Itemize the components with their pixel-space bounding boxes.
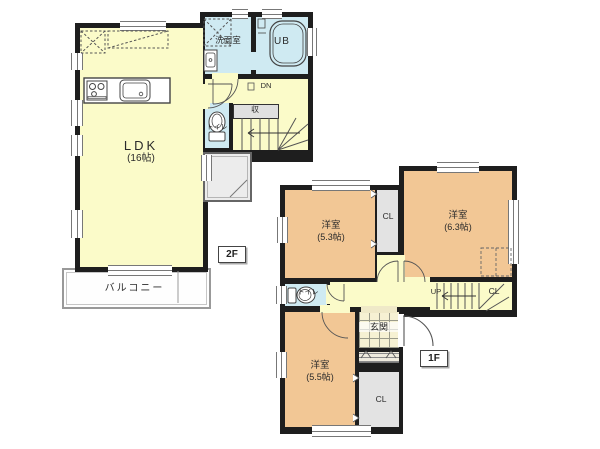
floor1-badge: 1F [420, 350, 448, 367]
balcony-sliding-door [108, 265, 172, 276]
closet-c-label: CL [368, 395, 394, 405]
window [312, 180, 370, 191]
closet-b-label: CL [482, 287, 506, 297]
window [120, 21, 166, 31]
bedroom-6-3-label: 洋室 [418, 211, 498, 222]
entrance-hall-step-opening [361, 306, 397, 313]
bedroom-5-5-label: 洋室 [280, 361, 360, 372]
bedroom-5-5-door-opening [320, 305, 350, 313]
balcony-label: バルコニー [92, 283, 177, 295]
doorway-recess [377, 255, 405, 283]
entrance-label: 玄関 [359, 322, 399, 332]
bedroom-6-3-size: (6.3帖) [418, 222, 498, 232]
stairs-dn-label: DN [256, 82, 276, 91]
window [71, 135, 83, 156]
ldk-size-label: (16帖) [101, 153, 181, 165]
ldk-label: LDK [101, 139, 181, 154]
window [437, 162, 479, 173]
toilet-1f-label: トイレ [288, 289, 328, 297]
toilet-2f-label: トイレ [203, 124, 231, 132]
window [312, 425, 371, 437]
floor-plan: バルコニー LDK (16帖) 洗面室 UB トイレ 収 DN 2F [0, 0, 600, 449]
stairs-up-label: UP [427, 288, 445, 297]
window [262, 9, 282, 19]
window [201, 155, 212, 181]
bedroom-5-3-label: 洋室 [291, 221, 371, 232]
bath-label: UB [258, 36, 306, 48]
window [277, 217, 288, 243]
ldk-door-opening [202, 84, 210, 109]
bedroom-5-3-size: (5.3帖) [291, 232, 371, 242]
bath-door-opening [251, 52, 257, 70]
window [307, 28, 317, 56]
window [276, 286, 287, 304]
window [508, 200, 519, 264]
storage-label: 収 [233, 105, 277, 114]
roof-section-inner [207, 156, 248, 198]
washroom-door-opening [212, 73, 238, 80]
window [71, 100, 83, 126]
window [71, 210, 83, 238]
hall-1f [330, 282, 430, 307]
window [71, 53, 83, 70]
washroom-label: 洗面室 [205, 36, 251, 46]
closet-a-label: CL [375, 212, 401, 222]
window [232, 9, 248, 19]
floor2-badge: 2F [218, 246, 246, 263]
bedroom-5-5-size: (5.5帖) [280, 372, 360, 382]
entrance-step [359, 352, 399, 363]
